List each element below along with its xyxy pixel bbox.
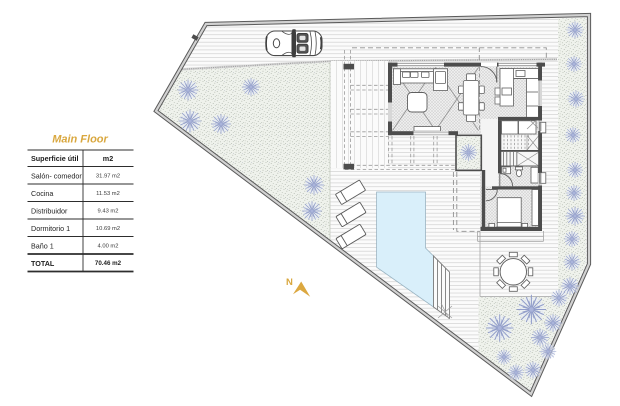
svg-text:Distribuidor: Distribuidor	[31, 207, 68, 216]
svg-text:9.43 m2: 9.43 m2	[98, 209, 119, 215]
svg-text:Salón- comedor: Salón- comedor	[31, 172, 82, 181]
svg-text:10.69 m2: 10.69 m2	[96, 226, 120, 232]
svg-text:TOTAL: TOTAL	[31, 259, 55, 268]
svg-text:Dormitorio 1: Dormitorio 1	[31, 224, 70, 233]
svg-text:Cocina: Cocina	[31, 189, 53, 198]
svg-text:Superficie útil: Superficie útil	[31, 154, 79, 163]
svg-text:4.00 m2: 4.00 m2	[98, 244, 119, 250]
svg-text:70.46 m2: 70.46 m2	[95, 260, 122, 267]
svg-text:31.97 m2: 31.97 m2	[96, 174, 120, 180]
svg-text:11.53 m2: 11.53 m2	[96, 191, 120, 197]
svg-text:m2: m2	[103, 154, 113, 163]
svg-text:Baño 1: Baño 1	[31, 242, 54, 251]
svg-text:N: N	[286, 277, 293, 288]
svg-text:Main Floor: Main Floor	[52, 134, 108, 146]
